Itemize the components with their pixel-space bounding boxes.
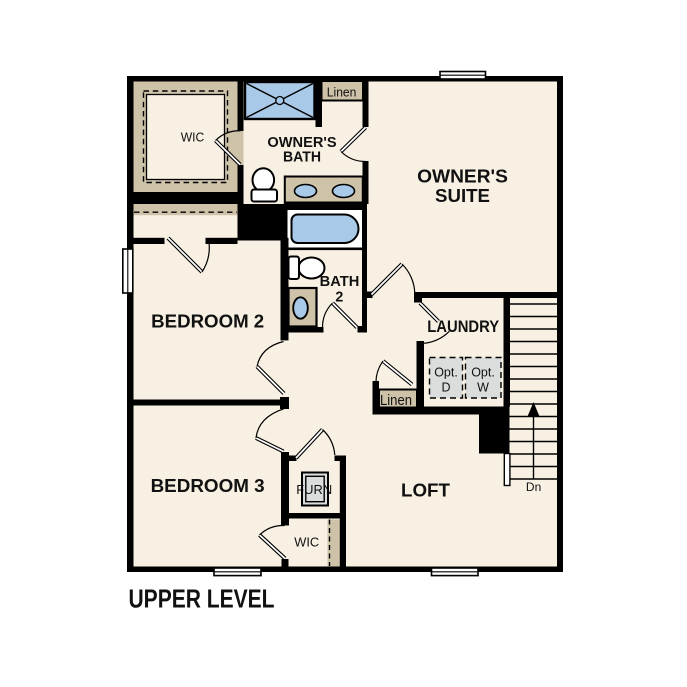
svg-text:WIC: WIC xyxy=(181,131,205,145)
svg-text:OWNER'S: OWNER'S xyxy=(267,135,336,151)
svg-text:BEDROOM 3: BEDROOM 3 xyxy=(151,475,265,496)
svg-text:BATH: BATH xyxy=(320,274,360,290)
svg-text:Dn: Dn xyxy=(526,482,541,494)
svg-text:Opt.: Opt. xyxy=(471,366,495,380)
svg-text:SUITE: SUITE xyxy=(435,185,490,206)
svg-text:BATH: BATH xyxy=(283,150,321,166)
svg-text:WIC: WIC xyxy=(294,535,319,550)
svg-text:Linen: Linen xyxy=(327,84,357,99)
svg-text:LOFT: LOFT xyxy=(401,480,450,501)
svg-text:BEDROOM 2: BEDROOM 2 xyxy=(151,311,264,332)
svg-text:Opt.: Opt. xyxy=(434,366,458,380)
svg-text:UPPER LEVEL: UPPER LEVEL xyxy=(129,584,275,614)
svg-text:OWNER'S: OWNER'S xyxy=(417,166,508,187)
svg-text:LAUNDRY: LAUNDRY xyxy=(427,317,499,336)
svg-text:W: W xyxy=(477,381,489,395)
svg-text:FURN: FURN xyxy=(296,483,332,497)
svg-text:D: D xyxy=(441,381,450,395)
svg-text:2: 2 xyxy=(335,290,343,306)
